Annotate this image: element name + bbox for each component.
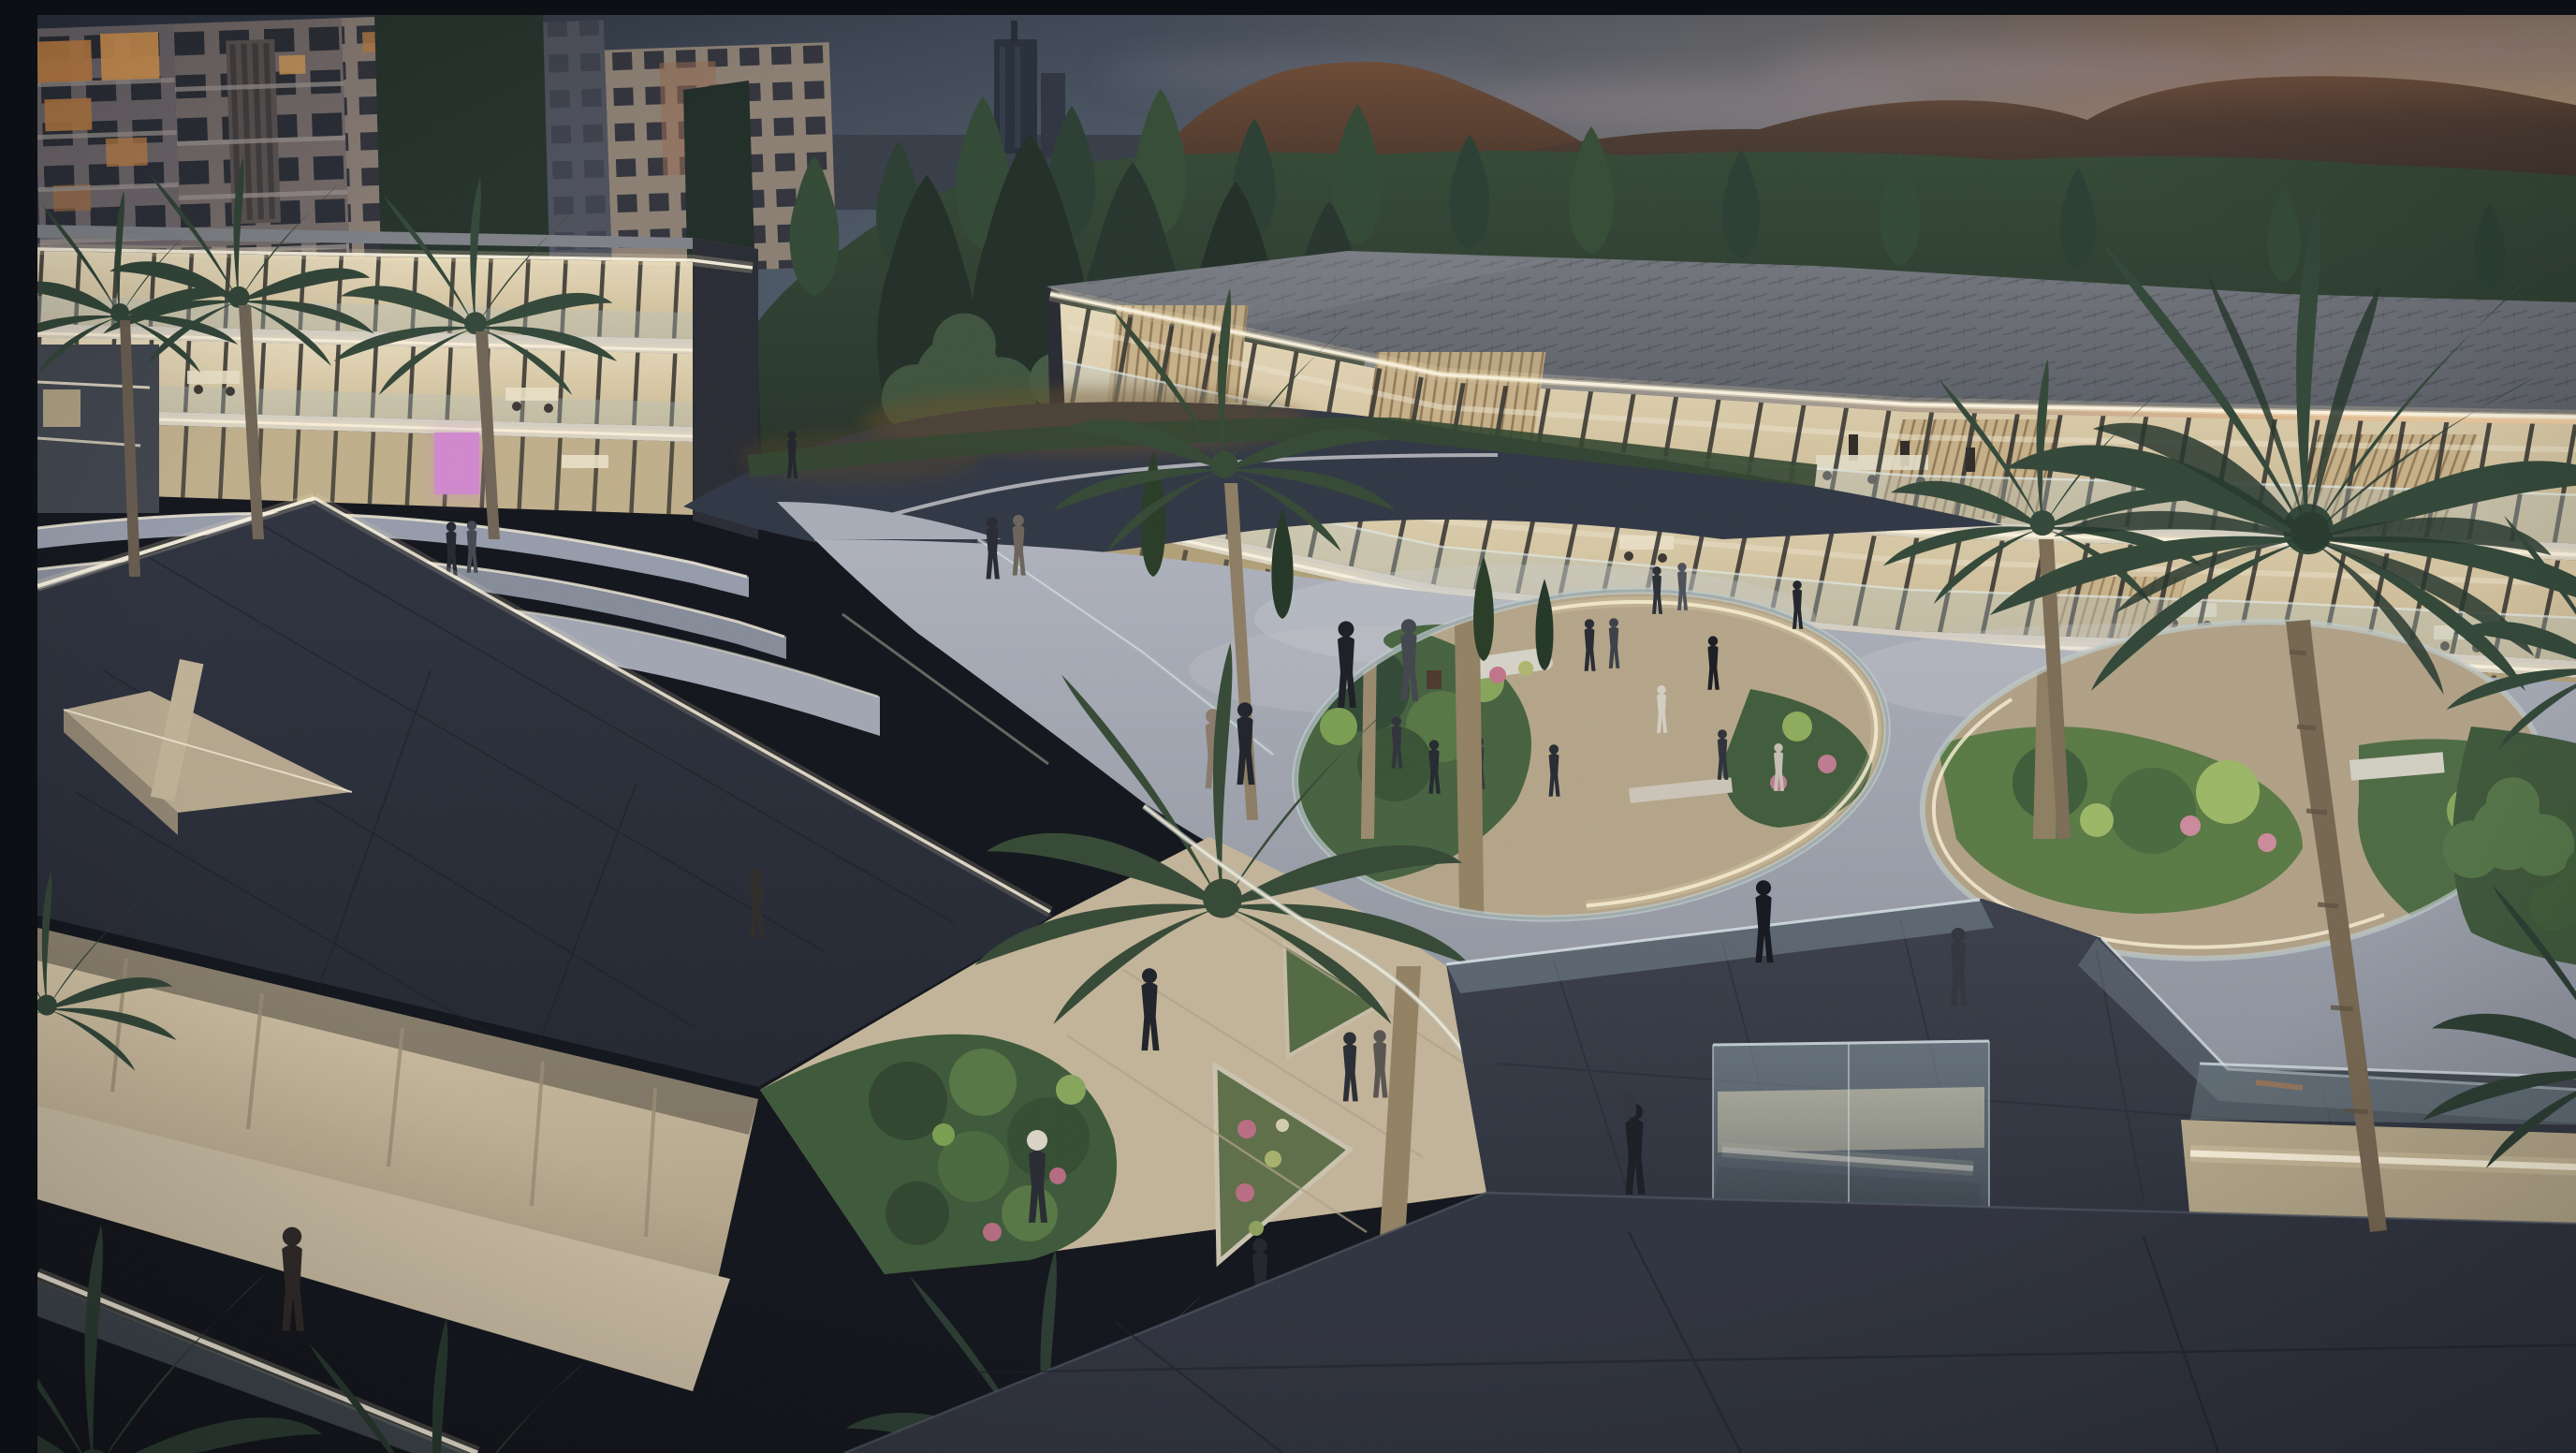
atmosphere: [37, 15, 2576, 1453]
rendering-canvas: [37, 15, 2576, 1453]
vignette: [37, 15, 2576, 1453]
architectural-rendering: Aerial dusk rendering of a modern mixed-…: [37, 15, 2576, 1453]
